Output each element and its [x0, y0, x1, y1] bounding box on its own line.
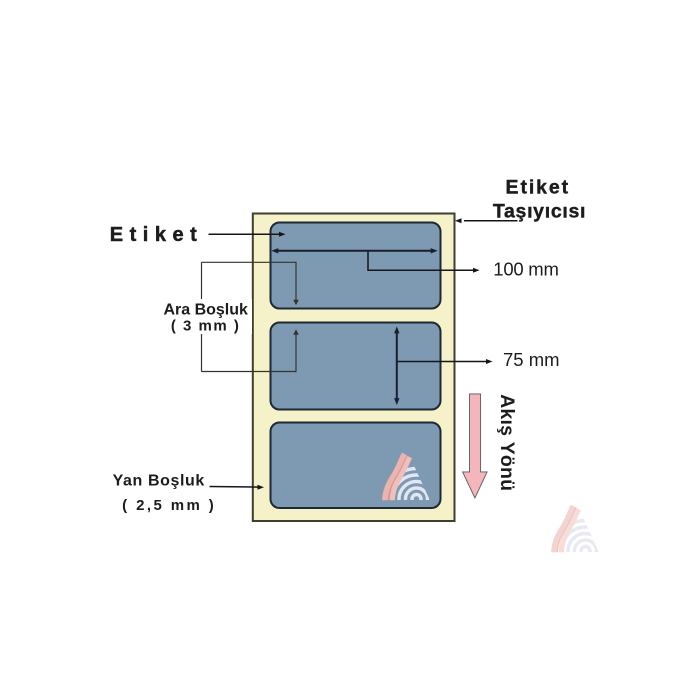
svg-text:Etiket: Etiket: [506, 176, 571, 198]
svg-text:Etiket: Etiket: [110, 224, 203, 246]
svg-text:75 mm: 75 mm: [503, 349, 560, 370]
svg-text:Yan Boşluk: Yan Boşluk: [113, 472, 205, 489]
svg-text:Ara Boşluk: Ara Boşluk: [163, 302, 248, 319]
svg-text:Taşıyıcısı: Taşıyıcısı: [493, 200, 586, 222]
svg-text:100 mm: 100 mm: [493, 259, 558, 280]
svg-text:( 2,5 mm ): ( 2,5 mm ): [122, 497, 216, 514]
svg-text:( 3 mm ): ( 3 mm ): [171, 318, 241, 335]
svg-text:Akış Yönü: Akış Yönü: [496, 394, 518, 491]
